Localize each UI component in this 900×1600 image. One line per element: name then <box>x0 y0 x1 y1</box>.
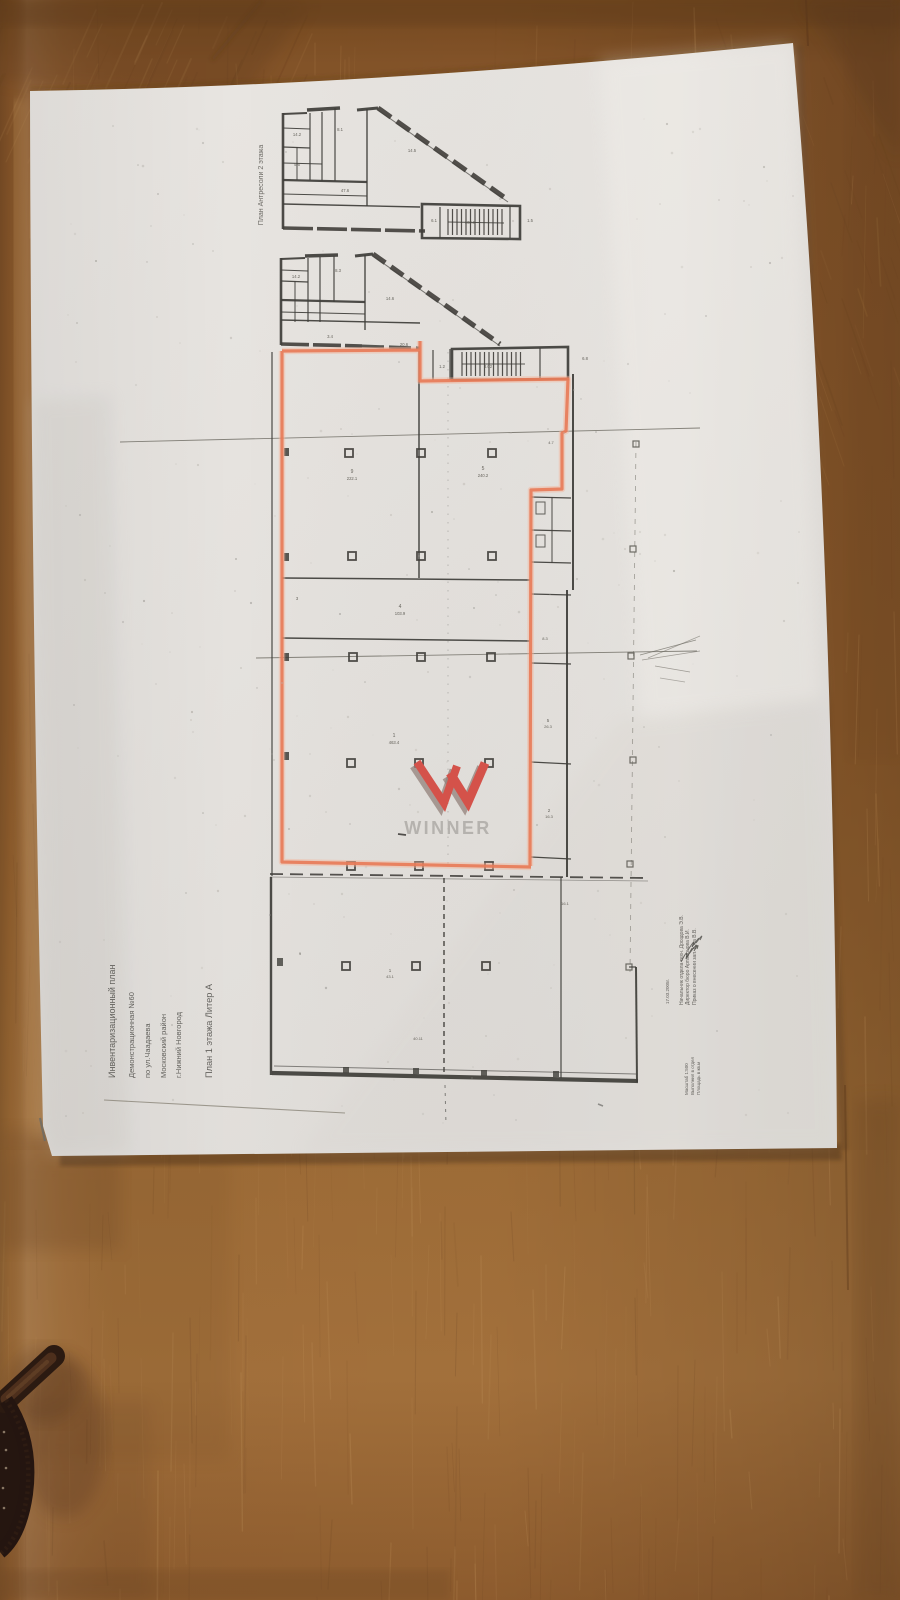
svg-text:8.1: 8.1 <box>337 127 343 132</box>
svg-text:240.2: 240.2 <box>478 473 489 478</box>
svg-text:WINNER: WINNER <box>404 818 491 838</box>
svg-text:План Антресоли 2 этажа: План Антресоли 2 этажа <box>258 145 265 226</box>
svg-text:Инвентаризационный план: Инвентаризационный план <box>107 964 117 1078</box>
svg-text:Директор бюро Артамонова В.И.: Директор бюро Артамонова В.И. <box>685 929 691 1005</box>
svg-text:43.1: 43.1 <box>386 974 395 979</box>
svg-text:26.3: 26.3 <box>544 724 553 729</box>
svg-text:14.5: 14.5 <box>408 148 417 153</box>
svg-text:8.3: 8.3 <box>542 636 548 641</box>
svg-text:5: 5 <box>482 466 485 472</box>
svg-text:Демонстрационная №60: Демонстрационная №60 <box>127 992 136 1078</box>
svg-text:6.1: 6.1 <box>431 218 437 223</box>
svg-text:14.2: 14.2 <box>292 274 301 279</box>
svg-text:16.3: 16.3 <box>545 814 554 819</box>
svg-text:Выполнил в отдел: Выполнил в отдел <box>690 1056 695 1095</box>
svg-text:Масштаб 1:500: Масштаб 1:500 <box>684 1063 689 1095</box>
svg-text:3.02: 3.02 <box>484 364 493 369</box>
svg-text:г.Нижний Новгород: г.Нижний Новгород <box>174 1011 183 1078</box>
svg-text:4: 4 <box>399 604 402 610</box>
svg-text:1.2: 1.2 <box>439 364 445 369</box>
svg-text:1.5: 1.5 <box>527 218 533 223</box>
svg-text:16.1: 16.1 <box>561 901 570 906</box>
svg-text:Площадь в кв.м: Площадь в кв.м <box>696 1062 701 1095</box>
svg-text:8.3: 8.3 <box>335 268 341 273</box>
svg-text:20.6: 20.6 <box>400 342 409 347</box>
svg-text:103.9: 103.9 <box>395 611 406 616</box>
svg-text:План 1 этажа Литер А: План 1 этажа Литер А <box>204 983 214 1078</box>
svg-text:3.4: 3.4 <box>327 334 333 339</box>
svg-text:14.2: 14.2 <box>293 132 302 137</box>
svg-text:17.03.2005г.: 17.03.2005г. <box>665 979 670 1004</box>
svg-text:40.11: 40.11 <box>413 1036 423 1041</box>
svg-text:463.4: 463.4 <box>389 740 400 745</box>
svg-text:222.1: 222.1 <box>347 476 358 481</box>
svg-text:102.8: 102.8 <box>465 220 476 225</box>
svg-text:6.8: 6.8 <box>582 356 588 361</box>
svg-text:по ул.Чаадаева: по ул.Чаадаева <box>143 1023 152 1078</box>
svg-text:4.7: 4.7 <box>548 440 554 445</box>
svg-text:1: 1 <box>393 733 396 739</box>
svg-text:9: 9 <box>351 469 354 475</box>
svg-text:14.6: 14.6 <box>386 296 395 301</box>
svg-text:47.6: 47.6 <box>341 188 350 193</box>
svg-text:5.6: 5.6 <box>294 162 300 167</box>
svg-text:Московский район: Московский район <box>159 1014 168 1078</box>
